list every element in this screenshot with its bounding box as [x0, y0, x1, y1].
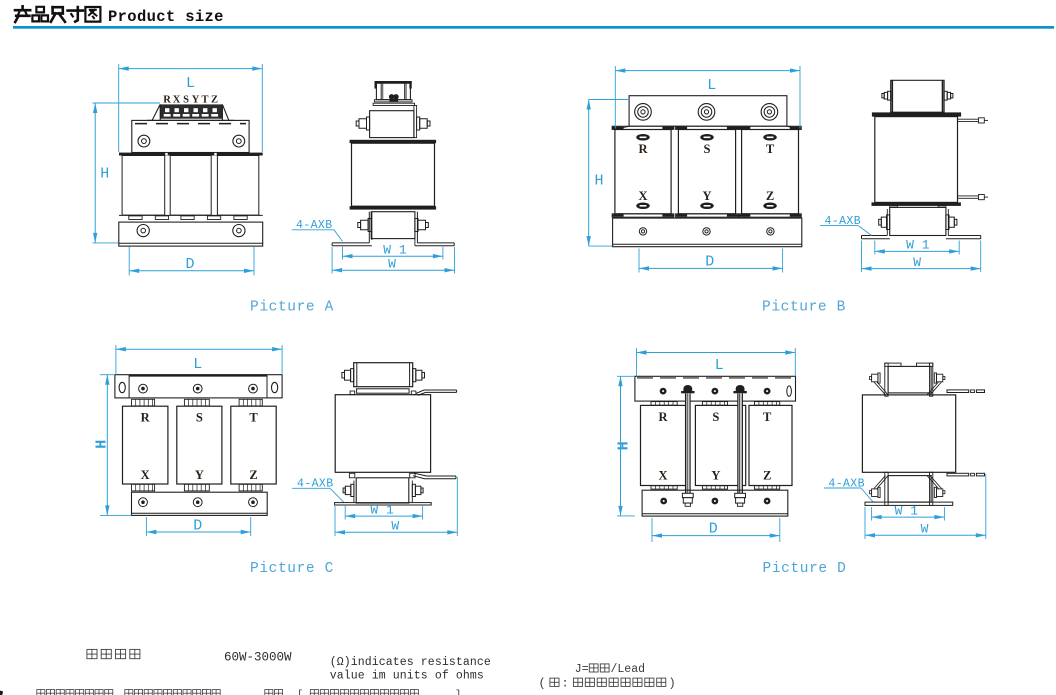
svg-text:W 1: W 1	[383, 243, 407, 258]
svg-text:D: D	[185, 256, 194, 273]
svg-text:Y: Y	[711, 468, 720, 482]
svg-text:Y: Y	[702, 189, 711, 203]
svg-text:Y: Y	[192, 95, 200, 106]
svg-text:W: W	[391, 519, 399, 534]
svg-text:(Ω)indicates resistance: (Ω)indicates resistance	[330, 656, 491, 669]
svg-text:D: D	[193, 517, 202, 534]
svg-text:R: R	[638, 142, 648, 156]
svg-text:T: T	[201, 95, 208, 106]
svg-text:W 1: W 1	[895, 504, 919, 519]
svg-text:X: X	[638, 189, 647, 203]
svg-text:S: S	[196, 410, 203, 424]
svg-text:X: X	[173, 95, 181, 106]
svg-text:(: (	[539, 677, 546, 691]
svg-text:R: R	[141, 410, 151, 424]
svg-text:W 1: W 1	[370, 503, 394, 518]
svg-text:Picture B: Picture B	[762, 300, 846, 316]
svg-text:Z: Z	[766, 189, 774, 203]
svg-text:R: R	[163, 95, 171, 106]
svg-text:): )	[669, 677, 676, 691]
svg-text:[: [	[297, 689, 303, 695]
svg-text:S: S	[712, 410, 719, 424]
svg-text:X: X	[658, 468, 667, 482]
svg-text:D: D	[705, 254, 714, 271]
svg-text::: :	[562, 677, 569, 691]
svg-text:T: T	[766, 142, 775, 156]
svg-text:D: D	[709, 520, 718, 537]
svg-text:Product size: Product size	[108, 8, 224, 26]
svg-text:Picture C: Picture C	[250, 561, 334, 577]
svg-text:]: ]	[455, 689, 461, 695]
svg-text:H: H	[94, 440, 111, 449]
svg-text:Z: Z	[249, 468, 257, 482]
svg-text:Z: Z	[211, 95, 218, 106]
svg-text:/Lead: /Lead	[611, 663, 646, 676]
svg-text:value im units of ohms: value im units of ohms	[330, 669, 484, 682]
svg-text:,: ,	[113, 690, 119, 695]
svg-text:H: H	[616, 441, 633, 450]
svg-text:L: L	[715, 357, 724, 374]
svg-text:R: R	[658, 410, 668, 424]
svg-text:S: S	[704, 142, 711, 156]
svg-text:W: W	[921, 522, 929, 537]
svg-text:Picture D: Picture D	[763, 561, 847, 577]
svg-text:Z: Z	[763, 468, 771, 482]
svg-text:W: W	[913, 255, 921, 270]
svg-text:S: S	[183, 95, 189, 106]
svg-text:T: T	[763, 410, 772, 424]
svg-text:Y: Y	[195, 468, 204, 482]
svg-text:J=: J=	[575, 663, 589, 676]
svg-text:X: X	[141, 468, 150, 482]
svg-text:L: L	[193, 356, 202, 373]
svg-text:60W-3000W: 60W-3000W	[224, 651, 292, 665]
svg-text:L: L	[707, 77, 716, 94]
svg-text:H: H	[594, 173, 603, 190]
svg-text:H: H	[100, 166, 109, 183]
svg-text:T: T	[249, 410, 258, 424]
svg-text:L: L	[186, 75, 195, 92]
svg-text:W: W	[388, 257, 396, 272]
svg-text:W 1: W 1	[906, 238, 930, 253]
svg-text:Picture A: Picture A	[250, 300, 334, 316]
